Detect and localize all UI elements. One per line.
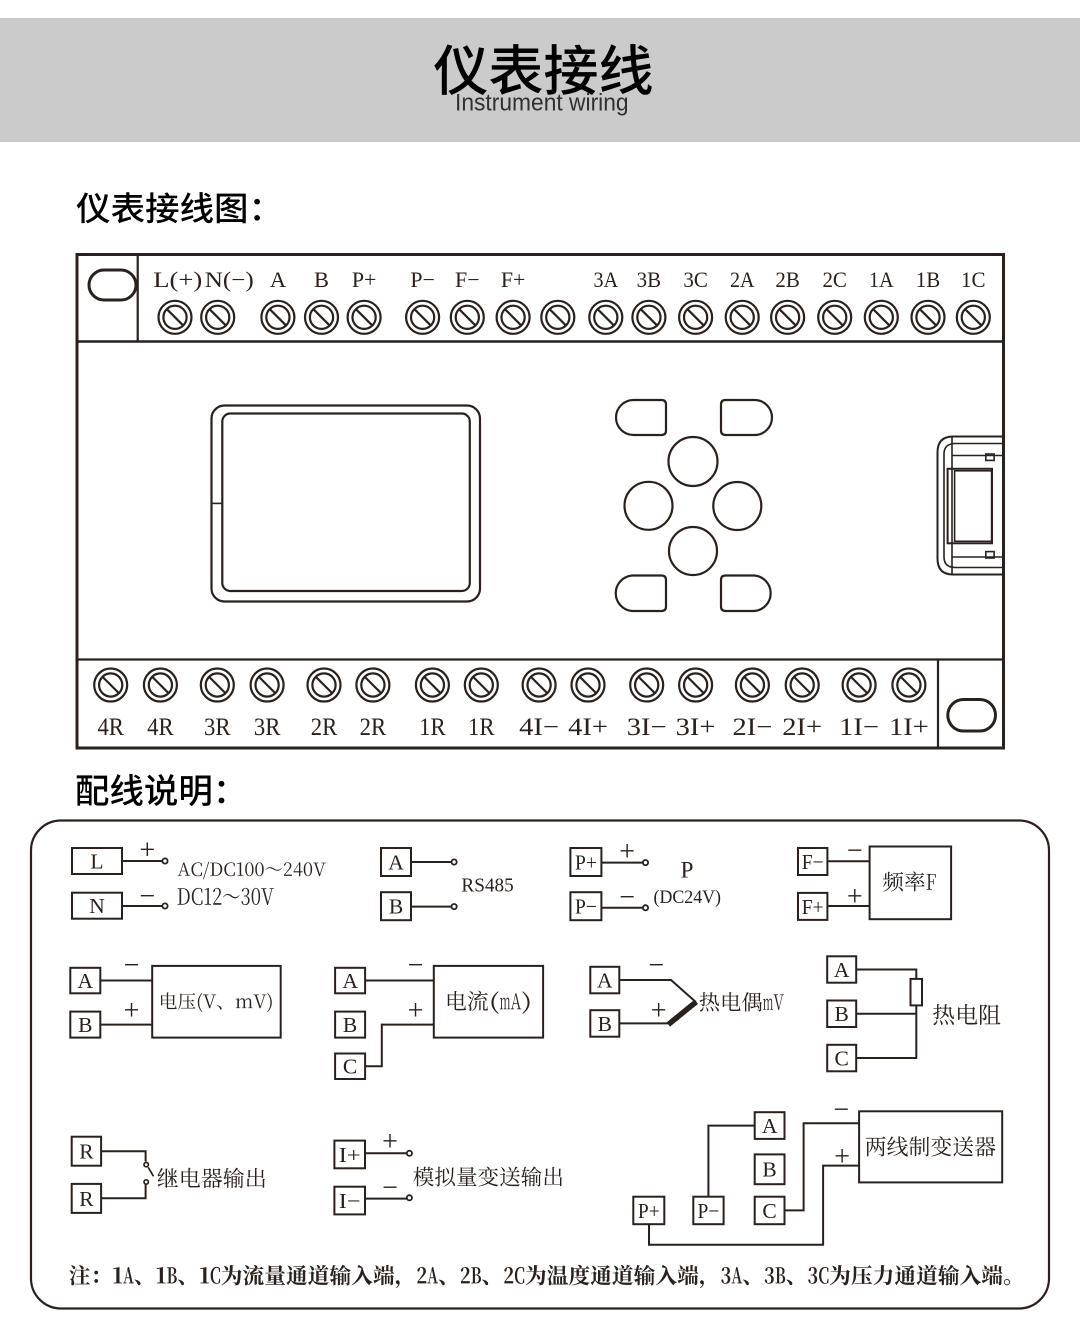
svg-text:3B: 3B	[637, 267, 662, 292]
svg-text:B: B	[314, 267, 329, 292]
svg-text:−: −	[408, 950, 424, 981]
svg-text:F−: F−	[802, 850, 824, 874]
svg-text:1C: 1C	[961, 267, 986, 292]
svg-text:4R: 4R	[147, 714, 174, 741]
svg-text:−: −	[139, 881, 155, 912]
svg-text:P−: P−	[410, 267, 435, 292]
svg-text:1A: 1A	[869, 267, 894, 292]
svg-text:−: −	[124, 950, 140, 981]
svg-text:−: −	[847, 836, 863, 867]
svg-text:L(+): L(+)	[153, 267, 202, 292]
svg-text:C: C	[343, 1055, 357, 1079]
svg-text:A: A	[270, 267, 286, 292]
svg-text:F+: F+	[802, 895, 824, 919]
svg-text:2I+: 2I+	[782, 714, 822, 741]
svg-text:P+: P+	[638, 1199, 660, 1223]
svg-text:B: B	[762, 1158, 776, 1182]
svg-text:(DC24V): (DC24V)	[654, 888, 722, 908]
svg-text:+: +	[139, 835, 155, 866]
svg-text:A: A	[597, 968, 613, 992]
svg-text:3R: 3R	[254, 714, 281, 741]
svg-text:3I+: 3I+	[676, 714, 716, 741]
svg-text:−: −	[619, 882, 635, 913]
svg-text:1I−: 1I−	[839, 714, 879, 741]
svg-text:+: +	[834, 1141, 850, 1172]
svg-text:C: C	[835, 1047, 849, 1071]
svg-text:B: B	[835, 1002, 849, 1026]
svg-text:3A: 3A	[594, 267, 619, 292]
svg-text:1I+: 1I+	[889, 714, 929, 741]
svg-text:B: B	[598, 1012, 612, 1036]
svg-text:+: +	[847, 882, 863, 913]
svg-text:3C: 3C	[683, 267, 708, 292]
svg-text:RS485: RS485	[461, 875, 513, 897]
svg-text:I−: I−	[339, 1189, 361, 1213]
svg-text:N(−): N(−)	[205, 267, 254, 292]
svg-text:P: P	[681, 858, 694, 883]
svg-text:3R: 3R	[204, 714, 231, 741]
svg-text:4I+: 4I+	[568, 714, 608, 741]
svg-text:−: −	[648, 950, 664, 981]
svg-text:−: −	[382, 1173, 398, 1204]
svg-text:4R: 4R	[97, 714, 124, 741]
svg-text:+: +	[124, 996, 140, 1027]
svg-text:2R: 2R	[360, 714, 387, 741]
svg-text:2C: 2C	[822, 267, 847, 292]
svg-text:−: −	[833, 1095, 849, 1126]
svg-text:B: B	[343, 1013, 357, 1037]
svg-text:Instrument wiring: Instrument wiring	[455, 90, 629, 117]
svg-text:L: L	[90, 849, 103, 873]
svg-text:R: R	[79, 1187, 94, 1211]
svg-text:2I−: 2I−	[733, 714, 773, 741]
svg-text:3I−: 3I−	[627, 714, 667, 741]
svg-text:A: A	[834, 958, 850, 982]
svg-text:A: A	[388, 850, 404, 874]
svg-text:1R: 1R	[468, 714, 495, 741]
svg-text:P+: P+	[352, 267, 377, 292]
svg-text:P−: P−	[575, 895, 597, 919]
svg-text:B: B	[78, 1013, 92, 1037]
svg-text:+: +	[619, 837, 635, 868]
svg-text:2B: 2B	[775, 267, 800, 292]
svg-text:R: R	[79, 1140, 94, 1164]
svg-text:+: +	[382, 1127, 398, 1158]
svg-text:2A: 2A	[730, 267, 755, 292]
svg-text:C: C	[762, 1199, 776, 1223]
svg-text:+: +	[651, 996, 667, 1027]
svg-text:1R: 1R	[419, 714, 446, 741]
svg-text:1B: 1B	[916, 267, 941, 292]
svg-text:A: A	[342, 969, 358, 993]
svg-text:F+: F+	[501, 267, 526, 292]
svg-text:B: B	[389, 895, 403, 919]
svg-text:F−: F−	[455, 267, 480, 292]
svg-text:+: +	[408, 996, 424, 1027]
svg-text:2R: 2R	[311, 714, 338, 741]
svg-text:A: A	[762, 1114, 778, 1138]
svg-text:P−: P−	[698, 1199, 720, 1223]
svg-text:A: A	[78, 969, 94, 993]
svg-text:I+: I+	[339, 1143, 361, 1167]
svg-text:N: N	[89, 894, 105, 918]
svg-text:4I−: 4I−	[519, 714, 559, 741]
svg-text:P+: P+	[575, 850, 597, 874]
